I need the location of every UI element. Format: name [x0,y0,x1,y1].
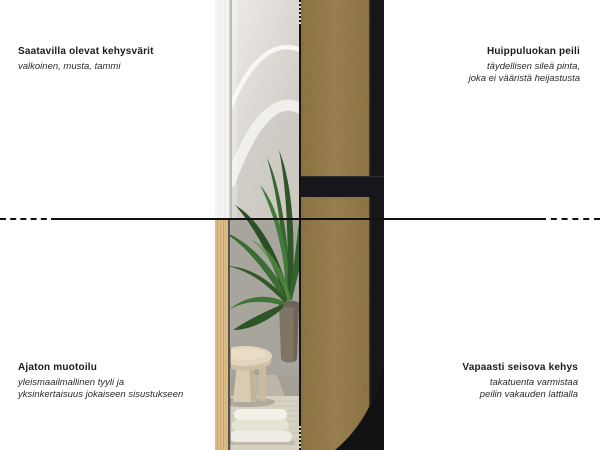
callout-subtitle: takatuenta varmistaa peilin vakauden lat… [462,377,578,401]
callout-frame-colors: Saatavilla olevat kehysvärit valkoinen, … [18,46,154,73]
callout-freestanding-frame: Vapaasti seisova kehys takatuenta varmis… [462,362,578,401]
callout-title: Huippuluokan peili [469,46,580,57]
callout-timeless-design: Ajaton muotoilu yleismaailmallinen tyyli… [18,362,183,401]
mirror-front-view [215,0,301,450]
vertical-guide-dotted-bottom [299,424,301,450]
vertical-guide-dotted-top [299,0,301,26]
rolled-textiles [229,409,295,445]
infographic-canvas: Saatavilla olevat kehysvärit valkoinen, … [0,0,600,450]
callout-title: Saatavilla olevat kehysvärit [18,46,154,57]
mirror-back-view [301,0,384,450]
horizontal-guide-line [57,218,540,220]
callout-subtitle: valkoinen, musta, tammi [18,61,154,73]
oak-frame-strip [215,219,231,450]
callout-title: Vapaasti seisova kehys [462,362,578,373]
front-back-seam-line [299,24,301,425]
callout-subtitle: yleismaailmallinen tyyli ja yksinkertais… [18,377,183,401]
callout-premium-mirror: Huippuluokan peili täydellisen sileä pin… [469,46,580,85]
mirror-reflection-arches [229,0,301,219]
mdf-back-panel [301,0,369,450]
horizontal-guide-dashed-left [0,218,57,220]
support-crossbar [301,176,384,200]
callout-title: Ajaton muotoilu [18,362,183,373]
horizontal-guide-dashed-right [540,218,600,220]
callout-subtitle: täydellisen sileä pinta, joka ei väärist… [469,61,580,85]
plant-pot [279,301,300,363]
white-frame-strip [215,0,232,219]
